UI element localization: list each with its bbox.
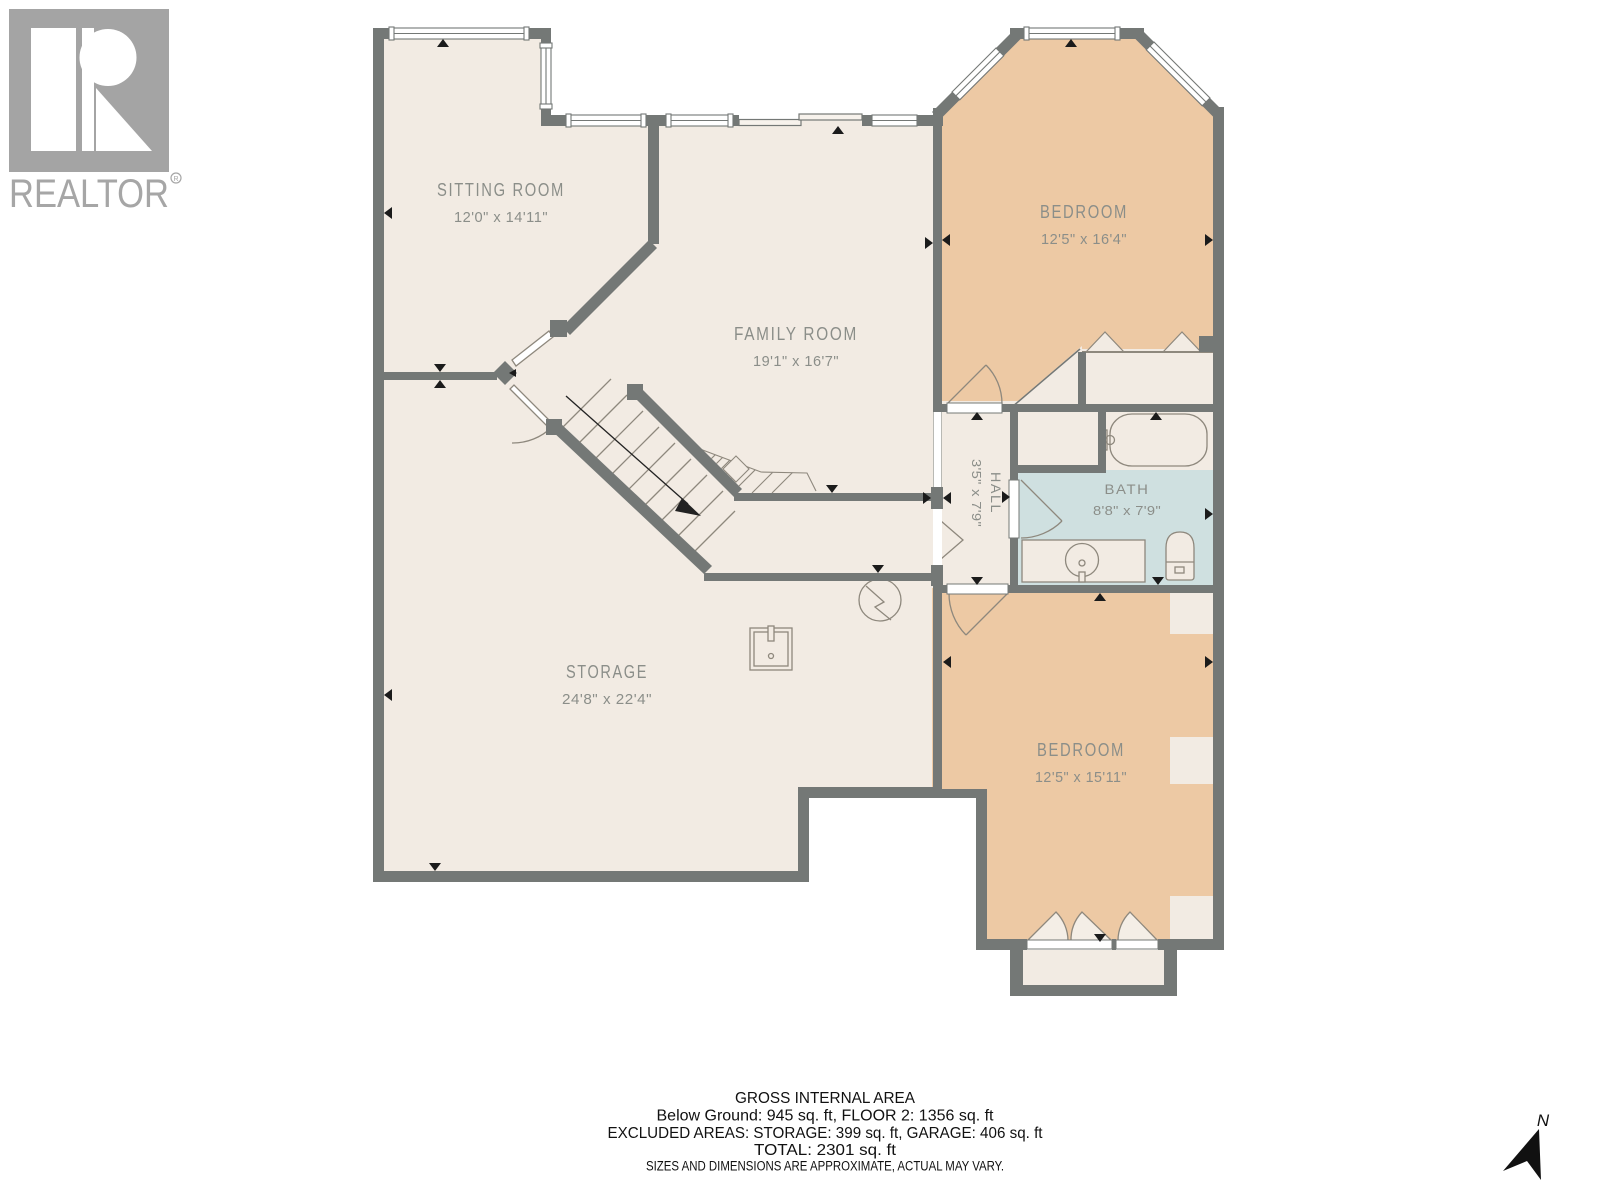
svg-text:24'8" x 22'4": 24'8" x 22'4" <box>562 691 652 708</box>
svg-text:12'0" x 14'11": 12'0" x 14'11" <box>454 209 548 226</box>
svg-text:HALL: HALL <box>988 472 1004 514</box>
svg-text:BATH: BATH <box>1105 481 1150 497</box>
svg-text:3'5" x 7'9": 3'5" x 7'9" <box>969 459 984 527</box>
svg-text:12'5" x 15'11": 12'5" x 15'11" <box>1035 769 1127 786</box>
svg-text:12'5" x 16'4": 12'5" x 16'4" <box>1041 231 1127 248</box>
svg-text:SITTING ROOM: SITTING ROOM <box>437 180 565 200</box>
svg-text:STORAGE: STORAGE <box>566 662 648 682</box>
svg-text:FAMILY ROOM: FAMILY ROOM <box>734 324 858 344</box>
svg-text:BEDROOM: BEDROOM <box>1040 202 1128 222</box>
svg-text:EXCLUDED AREAS: STORAGE: 399 s: EXCLUDED AREAS: STORAGE: 399 sq. ft, GAR… <box>608 1125 1044 1142</box>
svg-text:8'8" x 7'9": 8'8" x 7'9" <box>1093 503 1161 518</box>
svg-text:SIZES AND DIMENSIONS ARE APPRO: SIZES AND DIMENSIONS ARE APPROXIMATE, AC… <box>646 1159 1004 1174</box>
svg-text:TOTAL: 2301 sq. ft: TOTAL: 2301 sq. ft <box>754 1142 897 1159</box>
svg-text:BEDROOM: BEDROOM <box>1037 740 1125 760</box>
svg-text:REALTOR: REALTOR <box>9 172 169 216</box>
svg-text:R: R <box>173 176 178 183</box>
svg-text:GROSS INTERNAL AREA: GROSS INTERNAL AREA <box>735 1090 916 1107</box>
svg-text:Below Ground: 945 sq. ft, FLOO: Below Ground: 945 sq. ft, FLOOR 2: 1356 … <box>657 1108 995 1125</box>
svg-text:N: N <box>1537 1111 1550 1130</box>
svg-text:19'1" x 16'7": 19'1" x 16'7" <box>753 353 839 370</box>
